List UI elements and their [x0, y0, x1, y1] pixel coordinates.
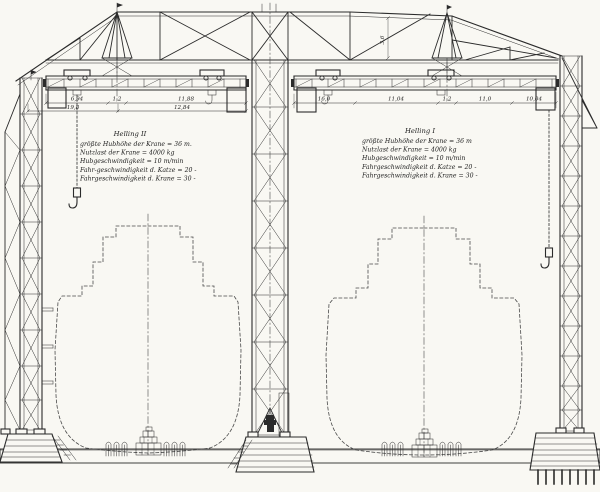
keel-blocks-right	[382, 429, 461, 457]
foundation-right	[530, 433, 600, 484]
spec-line: größte Hubhöhe der Krane = 36 m.	[80, 141, 192, 148]
dim-label: 6,94	[71, 97, 84, 103]
spec-line: Fahrgeschwindigkeit d. Krane = 30 -	[79, 175, 196, 182]
hook-block-right	[541, 110, 553, 268]
ship-hull-left	[55, 214, 241, 456]
hook-block-left	[69, 95, 81, 208]
crane-girder-left	[43, 76, 249, 90]
tower-right	[556, 56, 597, 433]
roof-truss	[16, 3, 562, 85]
dim-label: 16,0	[318, 97, 331, 103]
truss-height-dim: 3,6	[380, 17, 390, 60]
foundation-center	[228, 437, 314, 472]
ship-hull-right	[326, 216, 522, 457]
spec-line: größte Hubhöhe der Krane = 36 m	[362, 138, 472, 145]
spec-block-left: Helling II größte Hubhöhe der Krane = 36…	[79, 130, 197, 182]
tower-left	[1, 78, 53, 434]
spec-line: Hubgeschwindigkeit = 10 m/min	[361, 155, 465, 162]
dim-label: 11,04	[388, 97, 404, 103]
dim-label: 1,2	[443, 97, 452, 103]
dim-label: 10,04	[526, 97, 542, 103]
foundation-right-piles	[538, 470, 594, 484]
dim-label: 11,88	[178, 97, 194, 103]
dim-label: 12,84	[174, 105, 190, 111]
hoist-trolley	[64, 70, 90, 95]
tower-left-brackets	[42, 308, 53, 384]
engineering-drawing: 6,94 1,2 11,88 19,8 12,84 16,0 11,04 1,2…	[0, 0, 600, 492]
spec-line: Fahrgeschwindigkeit d. Katze = 20 -	[361, 164, 476, 171]
spec-line: Nutzlast der Krane = 4000 kg	[79, 150, 174, 157]
keel-stack-center	[136, 427, 161, 455]
hoist-trolley	[428, 70, 454, 95]
keel-stack-center	[412, 429, 437, 457]
spec-title-right: Helling I	[404, 127, 435, 135]
crane-girder-right	[291, 76, 559, 90]
spec-line: Fahrgeschwindigkeit d. Krane = 30 -	[361, 172, 478, 179]
drawing-canvas: 6,94 1,2 11,88 19,8 12,84 16,0 11,04 1,2…	[0, 0, 600, 492]
dim-label: 19,8	[67, 105, 80, 111]
spec-block-right: Helling I größte Hubhöhe der Krane = 36 …	[361, 127, 478, 179]
spec-line: Fahr-geschwindigkeit d. Katze = 20 -	[79, 167, 197, 174]
cab-left-end	[48, 88, 66, 108]
spec-title-left: Helling II	[113, 130, 147, 138]
dim-label: 1,2	[113, 97, 122, 103]
cab-right-of-center	[297, 88, 316, 112]
foundation-left	[0, 434, 76, 462]
cab-left-of-center	[227, 88, 246, 112]
spec-line: Nutzlast der Krane = 4000 kg	[361, 147, 456, 154]
spec-line: Hubgeschwindigkeit = 10 m/min	[79, 158, 183, 165]
dim-label: 11,0	[479, 97, 492, 103]
dim-label: 3,6	[380, 35, 386, 44]
tower-center	[248, 3, 290, 437]
